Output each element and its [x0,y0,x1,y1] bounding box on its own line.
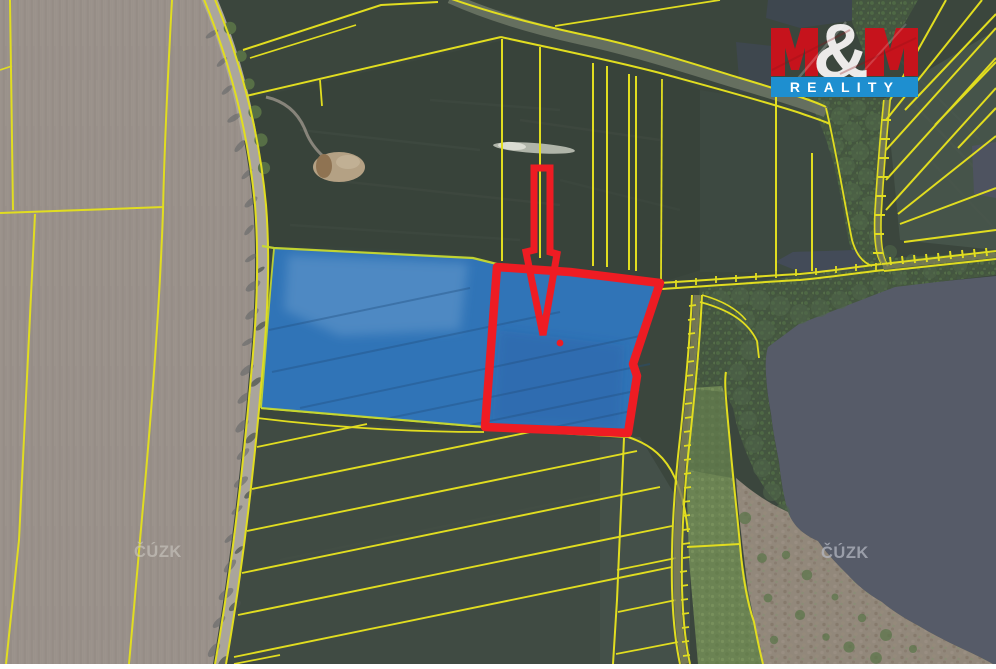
svg-text:ČÚZK: ČÚZK [821,543,869,562]
svg-text:ČÚZK: ČÚZK [134,542,182,561]
svg-text:REALITY: REALITY [790,79,900,95]
